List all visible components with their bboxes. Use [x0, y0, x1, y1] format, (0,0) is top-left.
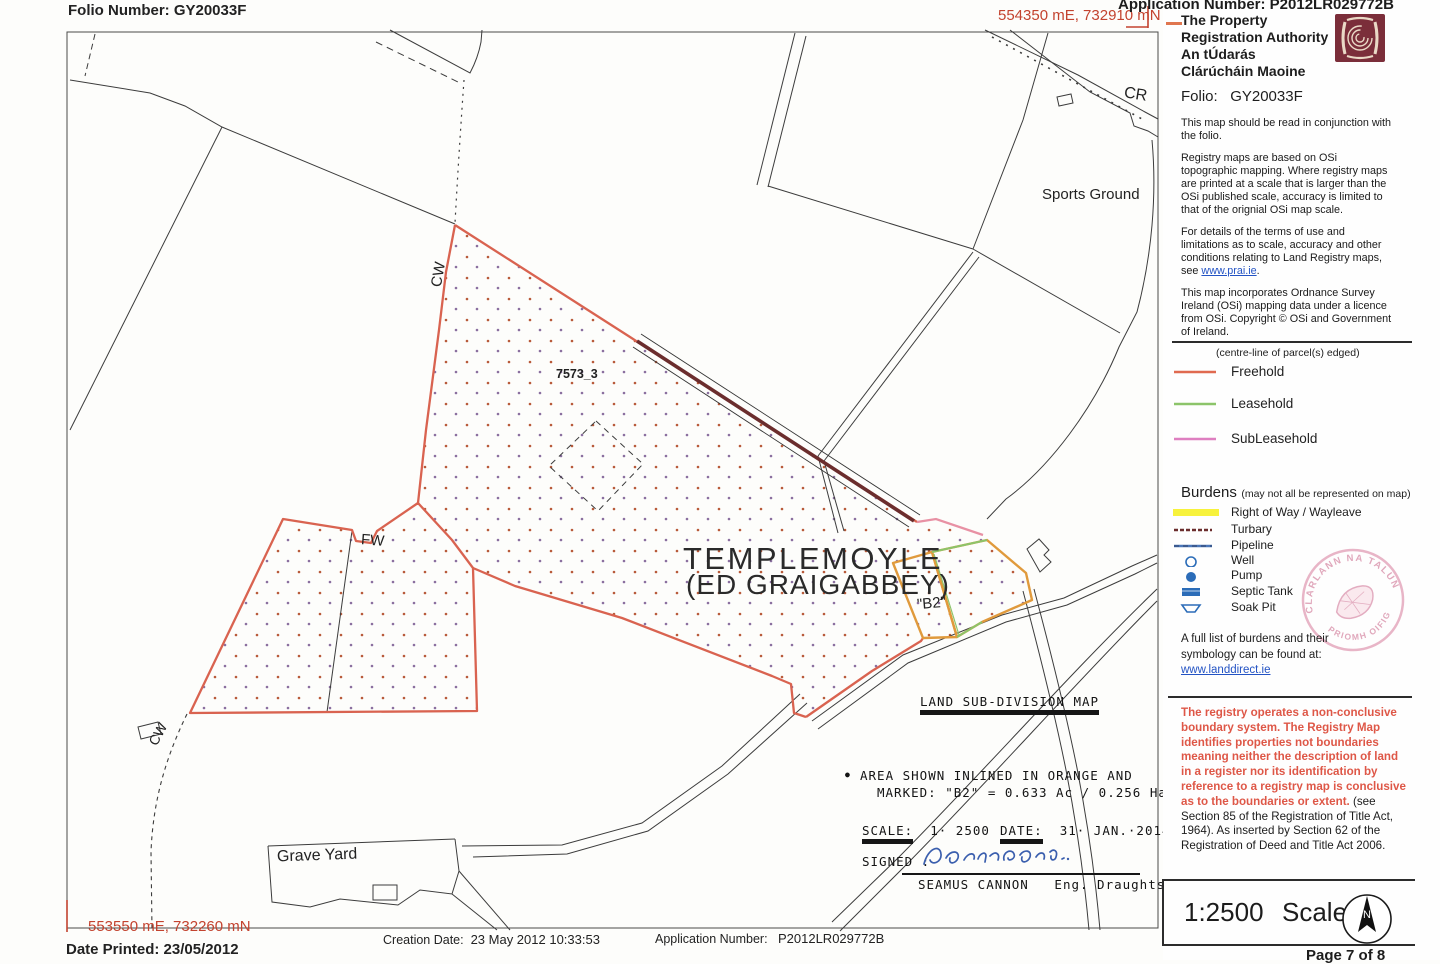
burden-row-turbary: Turbary	[1172, 522, 1412, 538]
folio-number-header: Folio Number: GY20033F	[68, 2, 246, 19]
burdens-footer: A full list of burdens and their symbolo…	[1181, 632, 1329, 679]
map-area: Folio Number: GY20033F 554350 mE, 732910…	[0, 0, 1165, 960]
burden-row-pipeline: Pipeline	[1172, 538, 1412, 554]
well-icon	[1172, 555, 1222, 567]
townland-name-line2: (ED GRAIGABBEY)	[686, 569, 950, 601]
sports-ground-label: Sports Ground	[1042, 186, 1140, 203]
soak-pit-icon	[1172, 602, 1222, 614]
creation-date: Creation Date: 23 May 2012 10:33:53	[383, 932, 600, 947]
landdirect-link[interactable]: www.landdirect.ie	[1181, 664, 1270, 676]
prai-link[interactable]: www.prai.ie	[1201, 265, 1256, 277]
leasehold-line-swatch	[1172, 398, 1222, 410]
road-label-cr: CR	[1123, 84, 1149, 105]
area-note-line2: MARKED: "B2" = 0.633 Ac / 0.256 Ha.	[877, 785, 1175, 800]
divider-1	[1172, 341, 1412, 343]
pump-icon	[1172, 570, 1222, 582]
burden-row-pump: Pump	[1172, 568, 1412, 584]
svg-text:N: N	[1363, 909, 1371, 921]
para-copyright: This map incorporates Ordnance Survey Ir…	[1181, 287, 1394, 339]
fw-label: FW	[360, 531, 384, 550]
legend-row-leasehold: Leasehold	[1172, 396, 1412, 414]
folio-line: Folio: GY20033F	[1181, 88, 1303, 105]
right-of-way-swatch	[1172, 507, 1222, 519]
septic-tank-icon	[1172, 586, 1222, 598]
application-number-footer: Application Number: P2012LR029772B	[655, 931, 884, 946]
burden-row-septic-tank: Septic Tank	[1172, 584, 1412, 600]
panel-paragraphs: This map should be read in conjunction w…	[1181, 117, 1394, 348]
signature-line	[902, 873, 1140, 875]
burdens-title: Burdens (may not all be represented on m…	[1181, 484, 1411, 502]
legend-note: (centre-line of parcel(s) edged)	[1216, 347, 1360, 359]
orange-tick	[1166, 22, 1182, 25]
scale-box-left-edge	[1162, 879, 1164, 946]
subleasehold-line-swatch	[1172, 433, 1222, 445]
para-terms: For details of the terms of use and limi…	[1181, 226, 1394, 278]
north-compass-icon: N	[1340, 892, 1394, 946]
burden-row-soak-pit: Soak Pit	[1172, 600, 1412, 616]
folio-value: GY20033F	[1230, 88, 1303, 105]
west-parcel-fill	[190, 503, 477, 713]
divider-3	[1162, 879, 1415, 881]
divider-4	[1162, 944, 1415, 946]
map-scale-value: 1:2500	[1184, 897, 1264, 928]
signature	[920, 838, 1080, 878]
signer-name-line: SEAMUS CANNON Eng. Draughtsman	[918, 877, 1191, 892]
area-note-line1: AREA SHOWN INLINED IN ORANGE AND	[860, 768, 1133, 783]
b2-parcel-label: "B2"	[916, 594, 946, 613]
para-conjunction: This map should be read in conjunction w…	[1181, 117, 1394, 143]
legend-row-freehold: Freehold	[1172, 364, 1412, 382]
authority-name: The Property Registration Authority An t…	[1181, 12, 1328, 80]
page-number: Page 7 of 8	[1306, 947, 1385, 964]
para-osi-scale: Registry maps are based on OSi topograph…	[1181, 152, 1394, 217]
freehold-line-swatch	[1172, 366, 1222, 378]
date-printed: Date Printed: 23/05/2012	[66, 941, 239, 958]
application-number-header: Application Number: P2012LR029772B	[1118, 0, 1394, 13]
legend-row-subleasehold: SubLeasehold	[1172, 431, 1412, 449]
map-linework	[0, 0, 1165, 960]
subdivision-scale: SCALE: 1· 2500	[862, 823, 990, 838]
freehold-parcel-fill	[418, 225, 1032, 717]
area-bullet: ●	[845, 770, 851, 779]
parcel-number-label: 7573_3	[556, 367, 598, 381]
subdivision-title: LAND SUB-DIVISION MAP	[920, 694, 1099, 709]
notice-red-text: The registry operates a non-conclusive b…	[1181, 706, 1406, 808]
pipeline-swatch	[1172, 540, 1222, 552]
turbary-swatch	[1172, 524, 1222, 536]
grave-yard-label: Grave Yard	[277, 846, 358, 867]
pra-logo-icon	[1335, 14, 1385, 62]
burden-row-wayleave: Right of Way / Wayleave	[1172, 505, 1412, 521]
map-scale-word: Scale	[1282, 897, 1347, 928]
land-registry-map-page: { "header": { "folio_number": "Folio Num…	[0, 0, 1440, 960]
boundary-notice: The registry operates a non-conclusive b…	[1181, 706, 1409, 854]
coordinate-bottom: 553550 mE, 732260 mN	[88, 918, 251, 935]
divider-2	[1168, 696, 1412, 698]
burden-row-well: Well	[1172, 553, 1412, 569]
subdivision-date: DATE: 31· JAN.·2014	[1000, 823, 1171, 838]
